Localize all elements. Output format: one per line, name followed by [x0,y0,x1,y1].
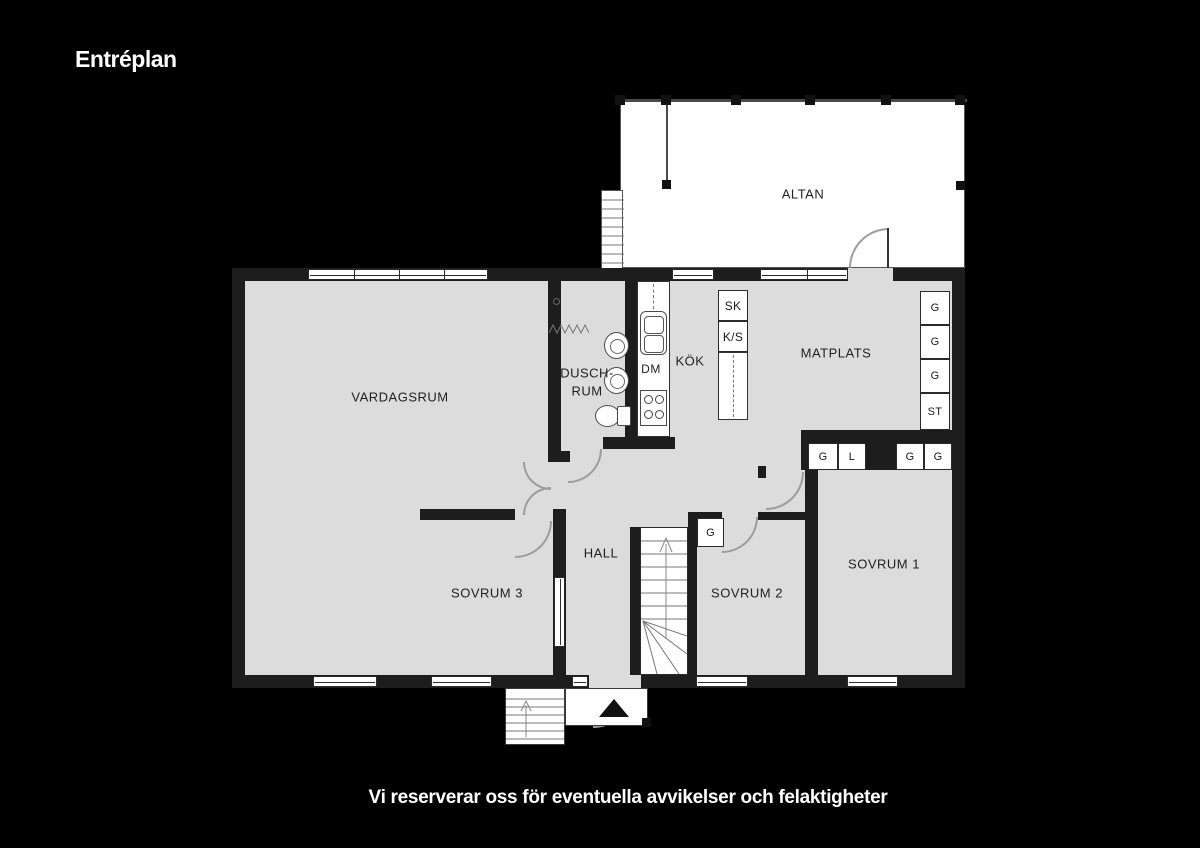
closet-g: G [896,443,924,470]
railing-post [615,95,625,105]
steps-icon [602,191,624,271]
wall [420,509,515,520]
counter-dashed-line [733,355,734,417]
railing-post [731,95,741,105]
wall [758,466,766,478]
wall [688,512,697,675]
window [431,676,492,687]
room-label-altan: ALTAN [782,187,824,202]
wall [548,451,570,462]
entry-door-opening [589,675,641,688]
altan-door-opening [848,268,893,281]
basin-bowl [610,339,625,354]
closet-l: L [838,443,866,470]
closet-label: G [931,370,940,382]
railing-post [956,181,965,190]
closet-st: ST [920,393,950,430]
washbasin-icon [604,332,629,359]
label-line: RUM [571,383,602,398]
label-line: DUSCH- [560,365,614,380]
cabinet-label: K/S [723,330,743,344]
closet-label: G [819,451,828,463]
railing-post [881,95,891,105]
entrance-arrow-icon [599,699,629,717]
closet-g: G [808,443,838,470]
closet-label: G [906,451,915,463]
railing-post [661,95,671,105]
sink-basin [644,335,664,353]
sink-basin [644,316,664,334]
room-label-sovrum2: SOVRUM 2 [711,586,783,601]
floor-plan-canvas: Entréplan Vi reserverar oss för eventuel… [0,0,1200,848]
label-dm: DM [641,362,661,376]
room-label-sovrum1: SOVRUM 1 [848,557,920,572]
steps-icon [506,689,564,744]
floor-drain-icon [553,298,560,305]
railing-post [642,718,651,727]
closet-label: G [934,451,943,463]
wall [630,527,640,675]
closet-label: L [849,451,855,463]
closet-label: G [931,302,940,314]
closet-label: ST [928,406,943,418]
room-label-matplats: MATPLATS [801,346,872,361]
wall [866,443,896,470]
cabinet-sk: SK [718,290,748,321]
cabinet-label: SK [725,299,742,313]
staircase [640,527,688,675]
closet-label: G [706,527,715,539]
toilet-tank [617,406,631,426]
room-label-kok: KÖK [676,354,705,369]
railing-post [662,180,671,189]
altan-steps [601,190,623,270]
wall [801,443,808,470]
room-label-vardagsrum: VARDAGSRUM [351,390,448,405]
window [696,676,748,687]
window [760,269,848,280]
wall [548,281,561,451]
disclaimer-text: Vi reserverar oss för eventuella avvikel… [369,787,888,809]
stove-icon [640,390,667,426]
wall [801,430,952,443]
closet-g: G [920,359,950,393]
cabinet-ks: K/S [718,321,748,352]
window [313,676,377,687]
wall [603,437,675,449]
window [847,676,898,687]
room-label-sovrum3: SOVRUM 3 [451,586,523,601]
altan-railing-divider [666,102,668,184]
railing-post [955,95,965,105]
closet-label: G [931,336,940,348]
stairs-icon [641,528,687,674]
window [572,676,588,687]
room-label-hall: HALL [584,546,619,561]
closet-g: G [920,325,950,359]
railing-post [805,95,815,105]
window [308,269,488,280]
wall [758,512,805,520]
wall [805,442,818,675]
door-leaf [887,228,889,268]
closet-g: G [697,518,724,547]
closet-g: G [924,443,952,470]
interior-floor [245,281,952,675]
radiator-icon [549,323,589,335]
altan-deck [620,100,965,268]
entry-steps [505,688,565,745]
room-label-duschrum: DUSCH- RUM [560,364,614,399]
window [554,577,565,647]
page-title: Entréplan [75,46,177,73]
kitchen-sink-icon [640,311,667,355]
closet-g: G [920,291,950,325]
counter-dashed-line [653,284,654,309]
window [672,269,714,280]
